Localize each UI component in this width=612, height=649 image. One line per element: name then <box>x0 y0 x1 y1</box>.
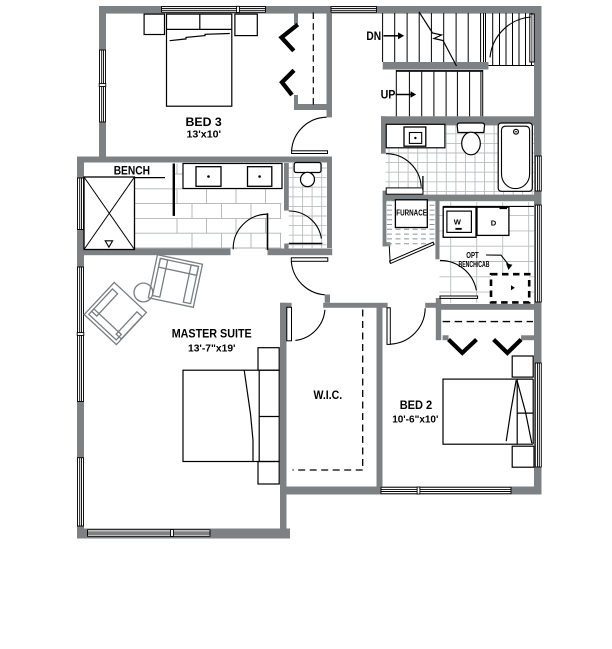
svg-text:W.I.C.: W.I.C. <box>314 388 343 402</box>
svg-text:DN: DN <box>366 29 381 43</box>
svg-text:BED 3: BED 3 <box>186 115 222 129</box>
svg-text:BENCH/CAB: BENCH/CAB <box>459 260 490 269</box>
svg-text:10'-6"x10': 10'-6"x10' <box>392 415 438 426</box>
svg-text:W: W <box>454 218 462 227</box>
svg-text:13'-7"x19': 13'-7"x19' <box>188 344 236 355</box>
svg-text:D: D <box>491 218 497 227</box>
svg-text:BENCH: BENCH <box>114 164 150 178</box>
svg-text:13'x10': 13'x10' <box>187 130 222 141</box>
svg-text:BED 2: BED 2 <box>400 398 433 412</box>
svg-text:UP: UP <box>381 88 396 102</box>
svg-text:MASTER SUITE: MASTER SUITE <box>172 327 252 341</box>
svg-text:FURNACE: FURNACE <box>396 208 427 217</box>
